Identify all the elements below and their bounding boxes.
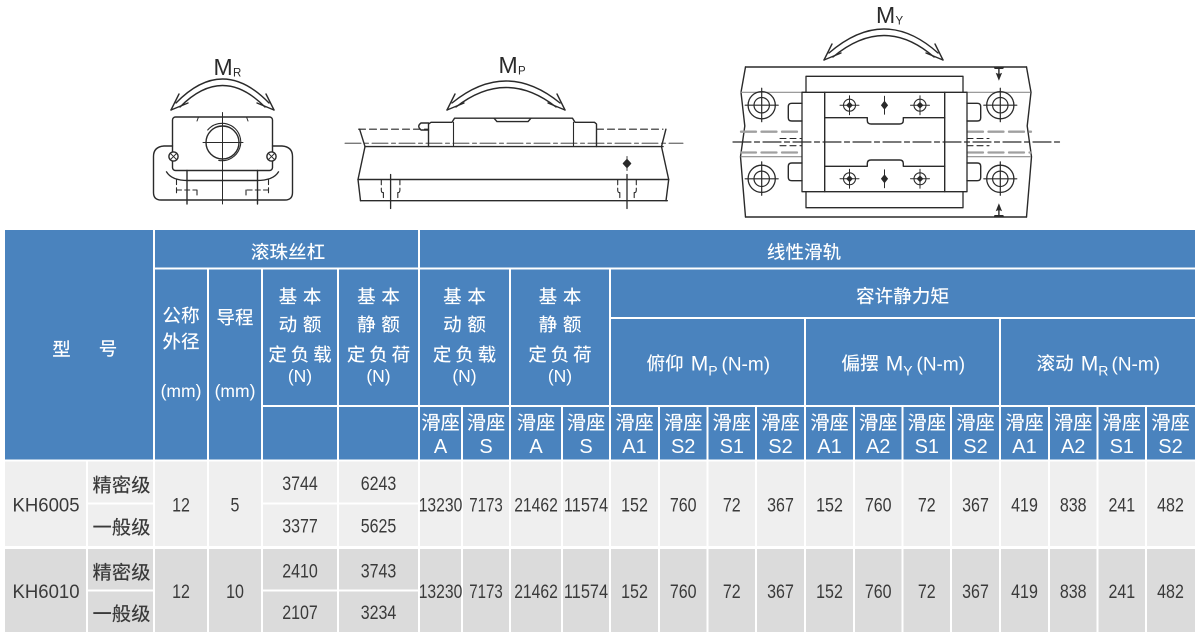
svg-text:A1: A1 xyxy=(817,436,841,458)
svg-text:367: 367 xyxy=(767,582,794,603)
svg-text:(N): (N) xyxy=(366,366,390,386)
svg-text:(N): (N) xyxy=(288,366,312,386)
svg-text:(mm): (mm) xyxy=(215,381,256,401)
svg-text:A2: A2 xyxy=(866,436,890,458)
svg-text:7173: 7173 xyxy=(469,582,503,603)
svg-text:21462: 21462 xyxy=(514,582,558,603)
svg-text:152: 152 xyxy=(621,582,648,603)
svg-text:367: 367 xyxy=(962,495,989,516)
svg-text:13230: 13230 xyxy=(419,495,463,516)
svg-text:(N): (N) xyxy=(548,366,572,386)
svg-text:367: 367 xyxy=(962,582,989,603)
svg-text:S1: S1 xyxy=(1110,436,1134,458)
svg-text:12: 12 xyxy=(172,495,190,516)
svg-text:M: M xyxy=(499,52,518,78)
svg-text:M: M xyxy=(876,2,895,28)
svg-text:482: 482 xyxy=(1157,582,1184,603)
svg-text:6243: 6243 xyxy=(361,474,397,495)
svg-text:152: 152 xyxy=(621,495,648,516)
svg-text:72: 72 xyxy=(723,582,741,603)
svg-text:419: 419 xyxy=(1011,582,1038,603)
svg-text:S: S xyxy=(579,436,592,458)
svg-text:760: 760 xyxy=(865,495,892,516)
svg-text:72: 72 xyxy=(723,495,741,516)
svg-text:M: M xyxy=(214,54,233,80)
svg-text:152: 152 xyxy=(816,582,843,603)
svg-text:A: A xyxy=(529,436,543,458)
svg-text:11574: 11574 xyxy=(564,495,608,516)
svg-text:367: 367 xyxy=(767,495,794,516)
svg-text:3234: 3234 xyxy=(361,603,397,624)
svg-text:P: P xyxy=(518,66,526,78)
svg-text:Y: Y xyxy=(903,363,913,379)
svg-text:S2: S2 xyxy=(671,436,695,458)
svg-text:S2: S2 xyxy=(768,436,792,458)
svg-text:12: 12 xyxy=(172,582,190,603)
svg-text:5: 5 xyxy=(231,495,240,516)
svg-text:838: 838 xyxy=(1060,495,1087,516)
svg-text:(mm): (mm) xyxy=(161,381,202,401)
svg-text:A: A xyxy=(434,436,448,458)
svg-text:KH6005: KH6005 xyxy=(13,494,80,516)
svg-text:M: M xyxy=(886,353,904,376)
svg-text:A1: A1 xyxy=(622,436,646,458)
svg-text:M: M xyxy=(1081,353,1099,376)
svg-text:72: 72 xyxy=(918,582,936,603)
svg-text:72: 72 xyxy=(918,495,936,516)
svg-text:R: R xyxy=(1098,363,1108,379)
svg-text:241: 241 xyxy=(1108,495,1135,516)
svg-text:(N): (N) xyxy=(452,366,476,386)
svg-text:838: 838 xyxy=(1060,582,1087,603)
svg-text:760: 760 xyxy=(670,495,697,516)
svg-text:419: 419 xyxy=(1011,495,1038,516)
svg-text:S1: S1 xyxy=(915,436,939,458)
svg-text:A1: A1 xyxy=(1012,436,1036,458)
svg-text:760: 760 xyxy=(865,582,892,603)
svg-text:S1: S1 xyxy=(720,436,744,458)
svg-text:P: P xyxy=(708,363,717,379)
svg-text:R: R xyxy=(233,68,241,80)
svg-text:11574: 11574 xyxy=(564,582,608,603)
svg-text:Y: Y xyxy=(896,16,904,28)
svg-text:760: 760 xyxy=(670,582,697,603)
svg-text:M: M xyxy=(691,353,709,376)
svg-text:152: 152 xyxy=(816,495,843,516)
svg-text:2410: 2410 xyxy=(282,561,318,582)
svg-text:10: 10 xyxy=(226,582,244,603)
svg-text:3743: 3743 xyxy=(361,561,397,582)
svg-text:A2: A2 xyxy=(1061,436,1085,458)
svg-text:2107: 2107 xyxy=(282,603,318,624)
svg-text:21462: 21462 xyxy=(514,495,558,516)
svg-text:(N-m): (N-m) xyxy=(722,355,771,376)
svg-text:241: 241 xyxy=(1108,582,1135,603)
svg-text:(N-m): (N-m) xyxy=(917,355,966,376)
svg-text:(N-m): (N-m) xyxy=(1112,355,1161,376)
svg-text:3744: 3744 xyxy=(282,474,318,495)
svg-text:S2: S2 xyxy=(1158,436,1182,458)
svg-text:S2: S2 xyxy=(963,436,987,458)
svg-text:482: 482 xyxy=(1157,495,1184,516)
svg-text:13230: 13230 xyxy=(419,582,463,603)
svg-text:KH6010: KH6010 xyxy=(13,581,80,603)
svg-text:3377: 3377 xyxy=(282,516,318,537)
svg-text:S: S xyxy=(479,436,492,458)
svg-text:7173: 7173 xyxy=(469,495,503,516)
svg-text:5625: 5625 xyxy=(361,516,397,537)
